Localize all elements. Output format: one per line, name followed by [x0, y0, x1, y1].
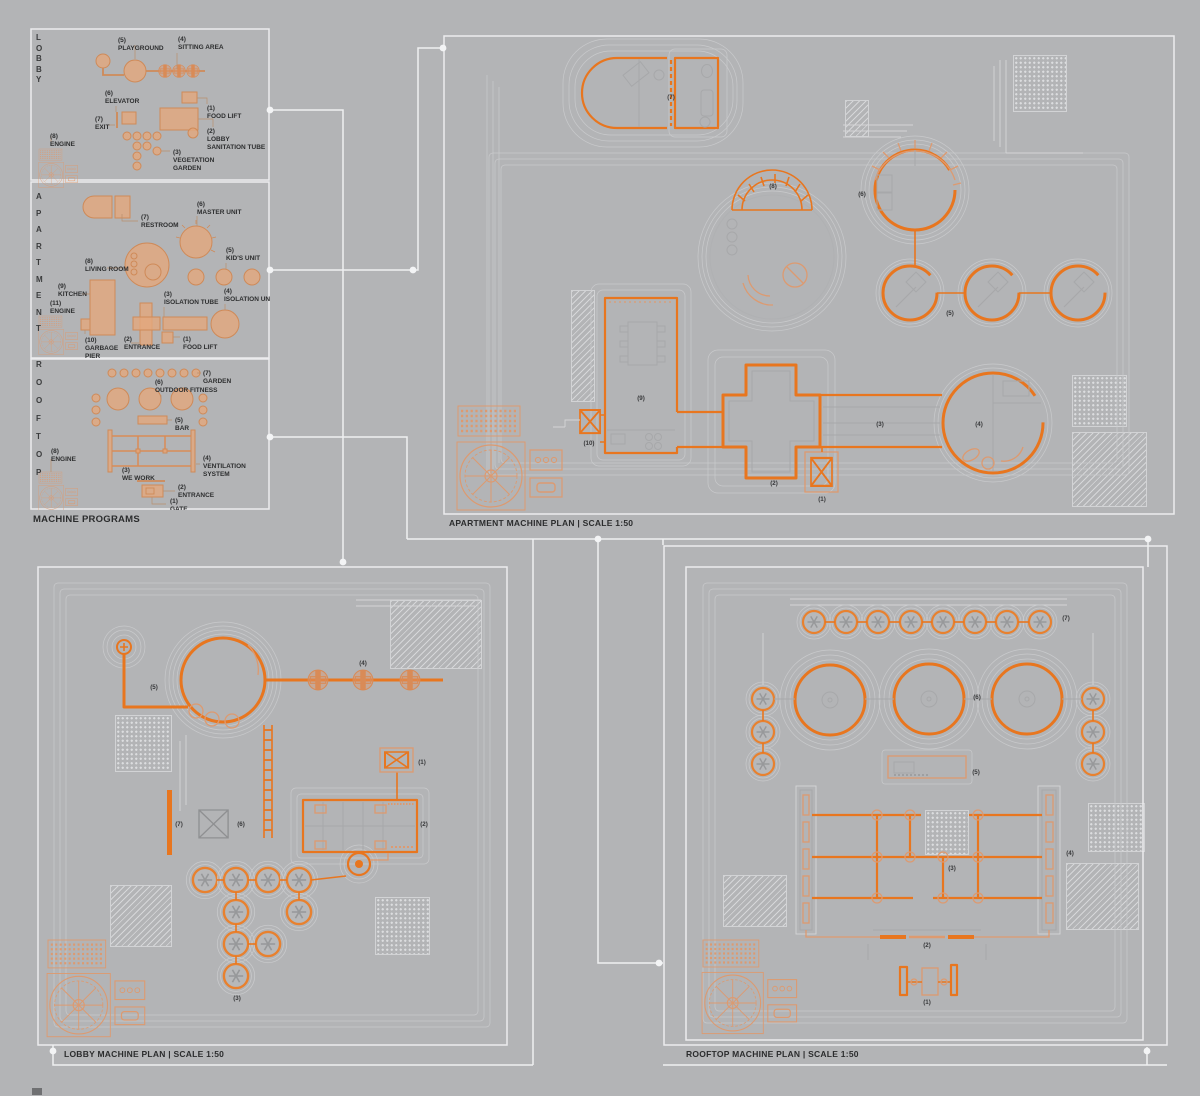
svg-text:GARDEN: GARDEN [203, 378, 231, 385]
rooftop-fitness-circles [774, 664, 1082, 735]
svg-text:(7): (7) [175, 821, 183, 828]
svg-text:(1): (1) [207, 105, 215, 112]
svg-text:(1): (1) [183, 336, 191, 343]
legend-vegetation-symbol [123, 132, 161, 170]
svg-text:(3): (3) [876, 421, 884, 428]
rooftop-engine [702, 940, 797, 1034]
svg-text:(8): (8) [85, 258, 93, 265]
svg-text:(7): (7) [203, 370, 211, 377]
svg-text:(1): (1) [818, 496, 826, 503]
svg-text:(8): (8) [50, 133, 58, 140]
svg-text:RESTROOM: RESTROOM [141, 222, 179, 229]
svg-text:ENTRANCE: ENTRANCE [124, 344, 161, 351]
lobby-vegetation-garden [186, 861, 346, 994]
svg-text:(10): (10) [583, 440, 594, 447]
svg-text:OUTDOOR FITNESS: OUTDOOR FITNESS [155, 387, 218, 394]
svg-text:(6): (6) [973, 694, 981, 701]
svg-text:(4): (4) [359, 660, 367, 667]
legend-title-rooftop: ROOFTOP [36, 356, 46, 482]
svg-text:(2): (2) [770, 480, 778, 487]
page-mark [32, 1088, 42, 1095]
svg-text:BAR: BAR [175, 425, 189, 432]
apartment-restroom-rooms [582, 58, 718, 128]
svg-text:(7): (7) [95, 116, 103, 123]
svg-text:(4): (4) [1066, 850, 1074, 857]
svg-text:KITCHEN: KITCHEN [58, 291, 87, 298]
svg-text:(7): (7) [141, 214, 149, 221]
svg-text:(6): (6) [858, 191, 866, 198]
lobby-playground [117, 638, 265, 728]
svg-text:(5): (5) [946, 310, 954, 317]
svg-text:(4): (4) [203, 455, 211, 462]
svg-text:ENGINE: ENGINE [50, 308, 76, 315]
svg-text:(10): (10) [85, 337, 97, 344]
svg-text:(3): (3) [233, 995, 241, 1002]
svg-text:(3): (3) [173, 149, 181, 156]
svg-text:VENTILATION: VENTILATION [203, 463, 246, 470]
svg-text:ISOLATION TUBE: ISOLATION TUBE [164, 299, 219, 306]
svg-text:SITTING AREA: SITTING AREA [178, 44, 224, 51]
svg-text:(5): (5) [972, 769, 980, 776]
lobby-plan: (1) (2) (3) (4) (5) (6) (7) [36, 565, 510, 1048]
apartment-food-lift [805, 447, 838, 492]
svg-text:VEGETATION: VEGETATION [173, 157, 215, 164]
apartment-caption: APARTMENT MACHINE PLAN | SCALE 1:50 [449, 518, 633, 528]
lobby-exit-bar [167, 790, 172, 855]
svg-text:(2): (2) [207, 128, 215, 135]
svg-text:(6): (6) [197, 201, 205, 208]
svg-text:SANITATION TUBE: SANITATION TUBE [207, 144, 266, 151]
presentation-board: (5) PLAYGROUND (4) SITTING AREA (6) ELEV… [0, 0, 1200, 1096]
apartment-engine [457, 406, 562, 510]
legend-title-apartment: APARTMENT [36, 189, 46, 338]
legend-panel: (5) PLAYGROUND (4) SITTING AREA (6) ELEV… [30, 28, 270, 510]
apartment-living-room [710, 170, 834, 319]
legend-apartment-symbols [39, 196, 260, 354]
rooftop-contours [703, 583, 1127, 1023]
svg-text:(11): (11) [50, 300, 61, 307]
legend-wework-symbol [108, 430, 195, 472]
lobby-sitting-tube [265, 670, 443, 690]
svg-text:(9): (9) [58, 283, 66, 290]
svg-text:FOOD LIFT: FOOD LIFT [183, 344, 217, 351]
apartment-entrance-cross [677, 365, 820, 478]
svg-text:ELEVATOR: ELEVATOR [105, 98, 140, 105]
svg-text:(4): (4) [975, 421, 983, 428]
svg-text:(6): (6) [155, 379, 163, 386]
svg-text:ENGINE: ENGINE [51, 456, 77, 463]
lobby-food-lift [380, 748, 413, 772]
label: (5) [118, 37, 126, 44]
apartment-plan: (1) (2) (3) (4) (5) (6) (7) (8) (9) (10) [443, 35, 1175, 515]
svg-text:(3): (3) [122, 467, 130, 474]
lobby-sanitation-machine [303, 772, 417, 852]
rooftop-bar [888, 756, 966, 778]
svg-text:WE WORK: WE WORK [122, 475, 155, 482]
svg-text:(3): (3) [948, 865, 956, 872]
rooftop-wework-grid [800, 790, 1056, 930]
svg-text:GATE: GATE [170, 506, 188, 510]
apartment-contours [487, 39, 1129, 493]
lobby-marks: (1) (2) (3) (4) (5) (6) (7) [150, 660, 428, 1002]
svg-text:(5): (5) [175, 417, 183, 424]
svg-text:PIER: PIER [85, 353, 100, 360]
svg-text:(8): (8) [51, 448, 59, 455]
lobby-elevator [199, 810, 228, 838]
svg-text:ENGINE: ENGINE [50, 141, 76, 148]
svg-text:(6): (6) [105, 90, 113, 97]
svg-text:(5): (5) [150, 684, 158, 691]
svg-text:(7): (7) [1062, 615, 1070, 622]
svg-text:SYSTEM: SYSTEM [203, 471, 230, 478]
lobby-ladder [264, 725, 272, 838]
svg-text:(3): (3) [164, 291, 172, 298]
legend-caption: MACHINE PROGRAMS [33, 514, 140, 525]
svg-text:(9): (9) [637, 395, 645, 402]
svg-text:PLAYGROUND: PLAYGROUND [118, 45, 164, 52]
svg-text:GARDEN: GARDEN [173, 165, 201, 172]
svg-text:(2): (2) [420, 821, 428, 828]
svg-text:EXIT: EXIT [95, 124, 109, 131]
svg-text:(2): (2) [124, 336, 132, 343]
rooftop-gate [900, 965, 957, 995]
svg-text:ENTRANCE: ENTRANCE [178, 492, 215, 499]
svg-text:(2): (2) [178, 484, 186, 491]
apartment-kids-units [883, 230, 1105, 320]
apartment-master-unit [872, 140, 961, 230]
svg-text:(2): (2) [923, 942, 931, 949]
svg-text:KID'S UNIT: KID'S UNIT [226, 255, 260, 262]
apartment-kitchen [605, 298, 677, 453]
apartment-isolation-unit [943, 373, 1043, 473]
lobby-caption: LOBBY MACHINE PLAN | SCALE 1:50 [64, 1049, 224, 1059]
svg-text:(6): (6) [237, 821, 245, 828]
svg-text:(4): (4) [178, 36, 186, 43]
legend-garden-chain [108, 369, 200, 377]
svg-text:ISOLATION UNIT: ISOLATION UNIT [224, 296, 270, 303]
rooftop-plan: (1) (2) (3) (4) (5) (6) (7) [663, 545, 1169, 1047]
lobby-engine [47, 940, 145, 1037]
svg-text:(1): (1) [418, 759, 426, 766]
svg-text:LOBBY: LOBBY [207, 136, 230, 143]
rooftop-caption: ROOFTOP MACHINE PLAN | SCALE 1:50 [686, 1049, 859, 1059]
rooftop-garden-chain [797, 605, 1057, 639]
svg-text:(8): (8) [769, 183, 777, 190]
svg-text:GARBAGE: GARBAGE [85, 345, 119, 352]
svg-text:FOOD LIFT: FOOD LIFT [207, 113, 241, 120]
svg-text:(1): (1) [923, 999, 931, 1006]
svg-text:LIVING ROOM: LIVING ROOM [85, 266, 129, 273]
svg-text:(5): (5) [226, 247, 234, 254]
svg-text:(1): (1) [170, 498, 178, 505]
svg-text:MASTER UNIT: MASTER UNIT [197, 209, 241, 216]
svg-text:(4): (4) [224, 288, 232, 295]
svg-text:(7): (7) [667, 94, 675, 101]
legend-title-lobby: LOBBY [36, 33, 46, 86]
